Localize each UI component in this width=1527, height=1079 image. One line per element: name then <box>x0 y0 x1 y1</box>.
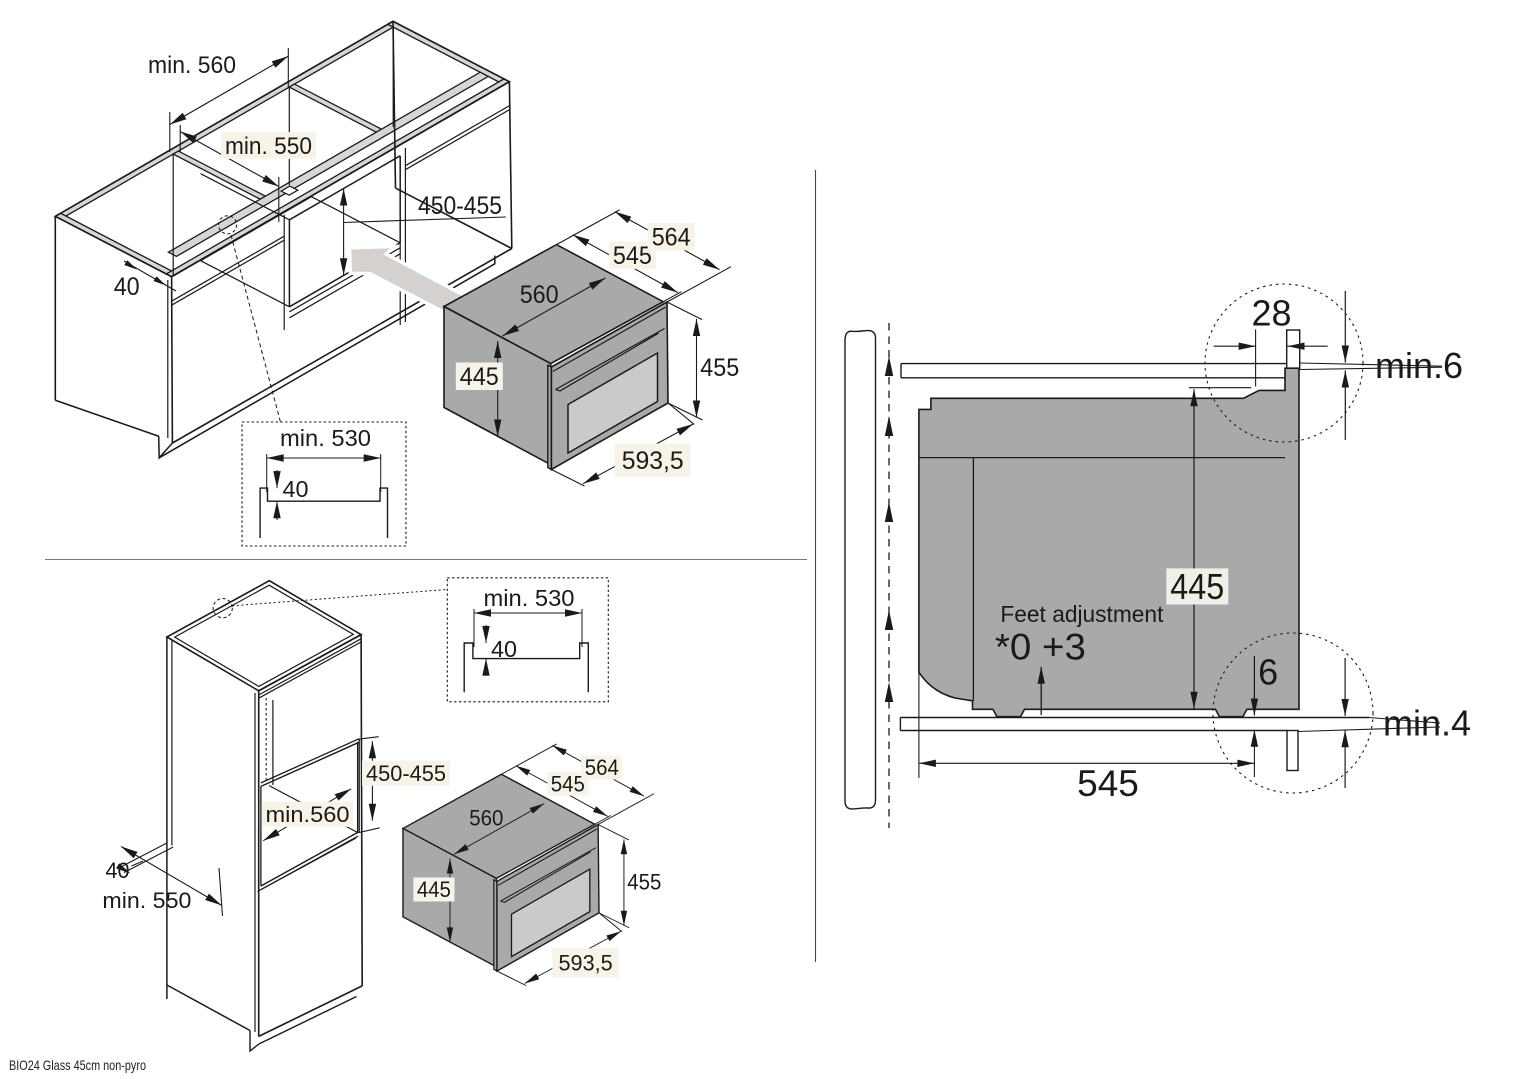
svg-text:BIO24 Glass 45cm non-pyro: BIO24 Glass 45cm non-pyro <box>9 1057 146 1073</box>
svg-text:40: 40 <box>283 476 309 502</box>
svg-text:40: 40 <box>114 273 140 301</box>
svg-text:593,5: 593,5 <box>622 447 684 475</box>
svg-text:450-455: 450-455 <box>366 761 446 786</box>
svg-text:545: 545 <box>1077 763 1139 804</box>
svg-text:min. 550: min. 550 <box>225 133 312 160</box>
svg-text:593,5: 593,5 <box>558 951 612 976</box>
svg-text:28: 28 <box>1252 293 1292 334</box>
svg-text:455: 455 <box>627 869 661 894</box>
svg-text:450-455: 450-455 <box>418 192 502 220</box>
svg-text:*0 +3: *0 +3 <box>995 627 1086 668</box>
svg-text:455: 455 <box>700 354 739 382</box>
svg-text:min.560: min.560 <box>266 802 350 827</box>
svg-text:min. 550: min. 550 <box>102 888 191 913</box>
svg-text:564: 564 <box>652 224 691 252</box>
svg-text:445: 445 <box>417 877 451 902</box>
svg-text:40: 40 <box>491 636 517 662</box>
svg-text:560: 560 <box>520 281 559 309</box>
svg-text:min. 560: min. 560 <box>148 52 236 79</box>
svg-text:545: 545 <box>613 242 652 270</box>
svg-text:min. 530: min. 530 <box>280 425 371 451</box>
svg-text:560: 560 <box>469 805 503 830</box>
svg-text:445: 445 <box>1170 566 1224 607</box>
svg-text:min.6: min.6 <box>1375 345 1463 386</box>
svg-text:564: 564 <box>585 755 619 780</box>
svg-text:Feet adjustment: Feet adjustment <box>1000 601 1164 627</box>
svg-text:445: 445 <box>460 363 499 391</box>
svg-text:40: 40 <box>106 858 130 883</box>
svg-text:min. 530: min. 530 <box>484 585 575 611</box>
svg-text:545: 545 <box>551 771 585 796</box>
svg-text:min.4: min.4 <box>1383 702 1471 743</box>
svg-text:6: 6 <box>1258 652 1278 693</box>
